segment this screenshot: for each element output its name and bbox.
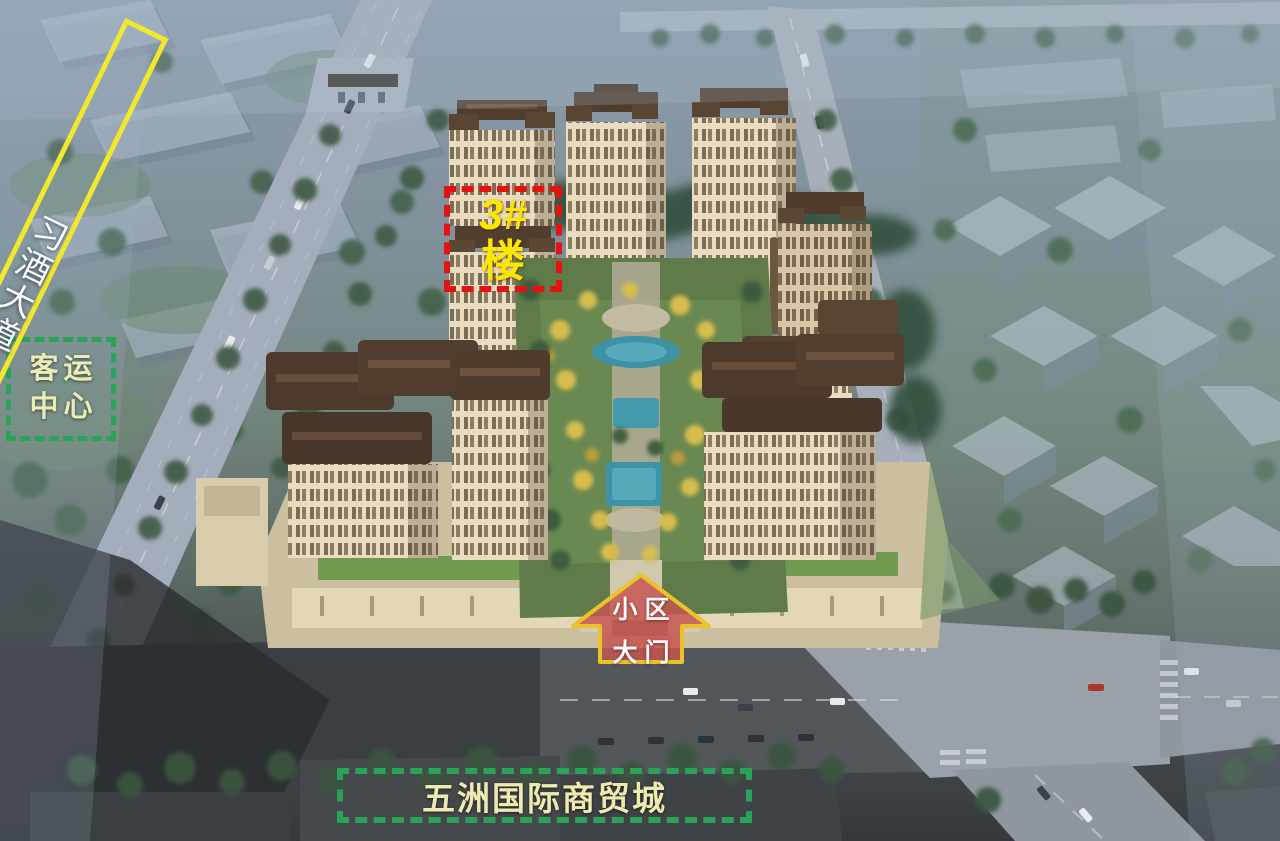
aerial-rendering-graphic [0, 0, 1280, 841]
building-3-suffix: 楼 [481, 240, 525, 284]
building-3-number: 3# [479, 194, 527, 237]
community-gate-callout: 小区 大门 [565, 570, 717, 670]
gate-label-line1: 小区 [612, 590, 676, 626]
garden-pool [613, 398, 659, 428]
aerial-site-plan: 客运 中心 习酒大道 3# 楼 小区 大门 五洲国际商贸城 [0, 0, 1280, 841]
passenger-center-label-line2: 中心 [29, 389, 97, 427]
gate-label-line2: 大门 [612, 633, 676, 669]
trade-city-callout: 五洲国际商贸城 [337, 768, 752, 823]
passenger-center-callout: 客运 中心 [6, 337, 116, 441]
building-3-callout: 3# 楼 [444, 186, 562, 292]
passenger-center-label-line1: 客运 [29, 351, 97, 389]
trade-city-label: 五洲国际商贸城 [422, 772, 667, 820]
